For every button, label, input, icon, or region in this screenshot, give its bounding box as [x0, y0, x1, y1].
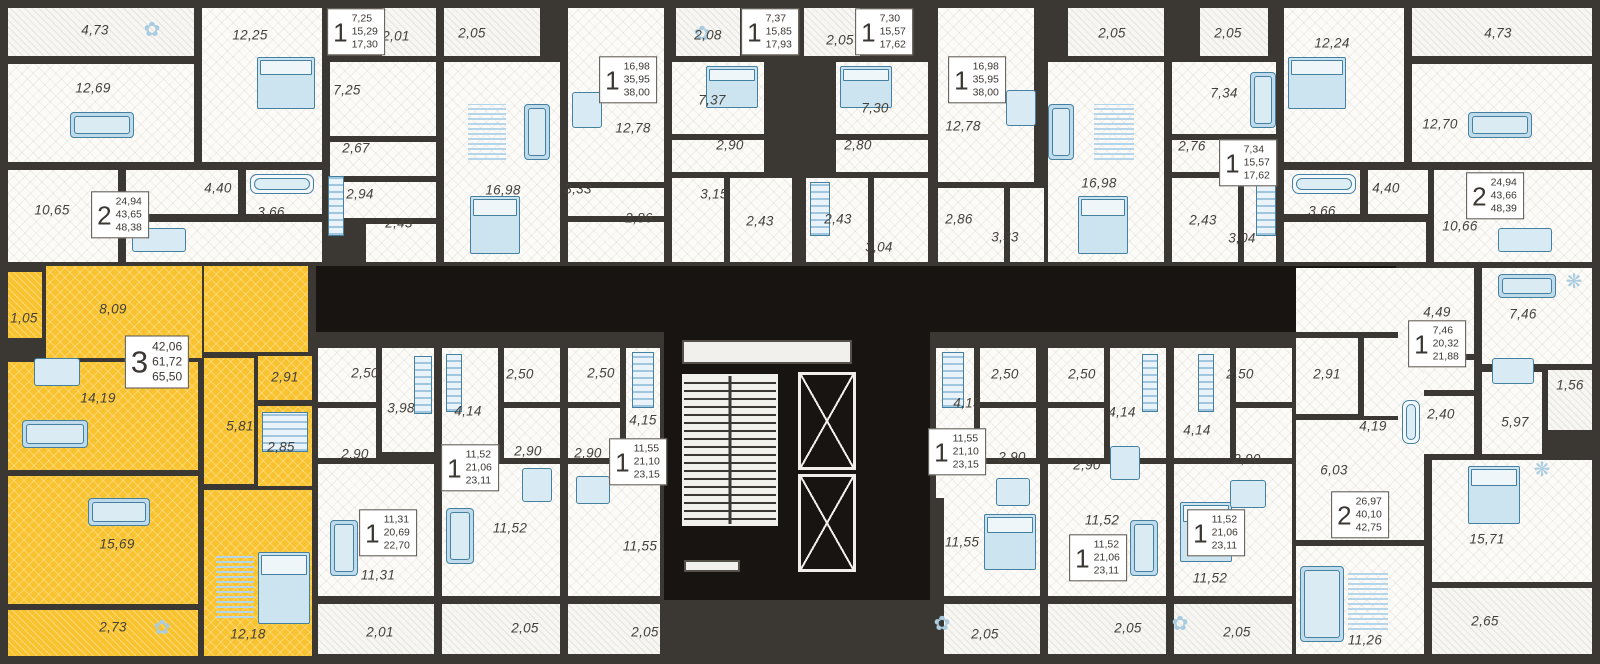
- apartment-studio-17-62-top-right[interactable]: [1172, 8, 1276, 262]
- apartment-1room-23-11-bottom-b[interactable]: [1048, 348, 1166, 654]
- apartment-3room-65-50-selected[interactable]: [8, 266, 312, 656]
- apartment-1room-23-11-bottom-a[interactable]: [442, 348, 560, 654]
- elevator-shaft: [798, 474, 856, 572]
- apartment-1room-22-70-bottom[interactable]: [318, 348, 434, 654]
- apartment-2room-48-38-top-left[interactable]: [8, 8, 322, 262]
- apartment-1room-38-00-top-right[interactable]: [938, 8, 1164, 262]
- apartment-1room-23-11-bottom-c[interactable]: [1174, 348, 1292, 654]
- apartment-2room-42-75-bottom-right[interactable]: [1296, 268, 1592, 654]
- apartment-studio-17-30-top[interactable]: [330, 8, 436, 262]
- apartment-studio-17-93-top[interactable]: [672, 8, 796, 262]
- apartment-studio-17-62-top-left[interactable]: [804, 8, 928, 262]
- corridor: [316, 266, 1396, 332]
- core-lobby: [682, 340, 852, 364]
- elevator-shaft: [798, 372, 856, 470]
- core-door: [684, 560, 740, 572]
- apartment-1room-38-00-top-left[interactable]: [444, 8, 664, 262]
- apartment-2room-48-39-top-right[interactable]: [1284, 8, 1592, 262]
- floor-plan: ✿✿✿✿✿✿❋❋4,7312,252,012,052,082,052,052,0…: [0, 0, 1600, 664]
- apartment-1room-23-15-bottom-left[interactable]: [568, 348, 660, 654]
- apartment-1room-23-15-bottom-right[interactable]: [936, 348, 1040, 654]
- staircase: [682, 374, 778, 526]
